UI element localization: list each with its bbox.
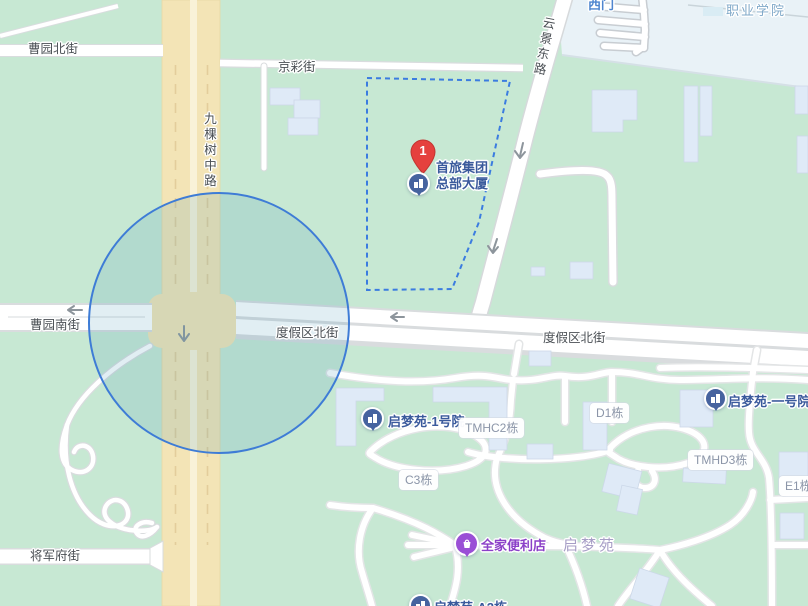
residence-poi-label-2[interactable]: 启梦苑-一号院 [728,391,808,410]
residence-poi-label-1[interactable]: 启梦苑-1号院 [388,411,465,430]
street-label-caoyuan-south: 曹园南街 [30,314,80,333]
building-chip-d1[interactable]: D1栋 [590,403,629,423]
residence-poi-pin-2[interactable] [704,387,727,410]
street-label-dujiaqu-east: 度假区北街 [543,327,606,346]
marker-number: 1 [410,143,436,158]
area-label-west-gate: 西门 [588,0,614,13]
marker-title-line2[interactable]: 总部大厦 [436,173,488,192]
street-label-caoyuan-north: 曹园北街 [28,38,78,57]
street-label-jiukeshu: 九棵树中路 [200,112,219,190]
residence-poi-pin-1[interactable] [361,407,384,430]
map-render-layer [0,0,808,606]
street-label-jingcai: 京彩街 [278,56,316,75]
street-label-jiangjunfu: 将军府街 [30,545,80,564]
street-label-dujiaqu-west: 度假区北街 [276,322,339,341]
building-icon [710,393,721,404]
building-icon [413,178,424,189]
building-chip-e1[interactable]: E1栋 [779,476,808,496]
building-icon [367,413,378,424]
building-chip-tmhd3[interactable]: TMHD3栋 [688,450,753,470]
company-poi-pin[interactable] [407,172,430,195]
area-label-qimengyuan: 启梦苑 [563,534,617,555]
store-poi-label[interactable]: 全家便利店 [481,535,546,554]
map-canvas[interactable]: 曹园北街 京彩街 九棵树中路 云景东路 曹园南街 度假区北街 度假区北街 将军府… [0,0,808,606]
building-icon [415,600,426,606]
area-label-college: 职业学院 [726,0,786,19]
building-chip-c3[interactable]: C3栋 [399,470,438,490]
residence-poi-label-3[interactable]: 启梦苑-A2栋 [434,597,507,606]
store-poi-pin[interactable] [454,531,479,556]
shopping-bag-icon [461,538,473,550]
search-result-marker[interactable]: 1 [410,139,436,175]
building-chip-tmhc2[interactable]: TMHC2栋 [459,418,524,438]
